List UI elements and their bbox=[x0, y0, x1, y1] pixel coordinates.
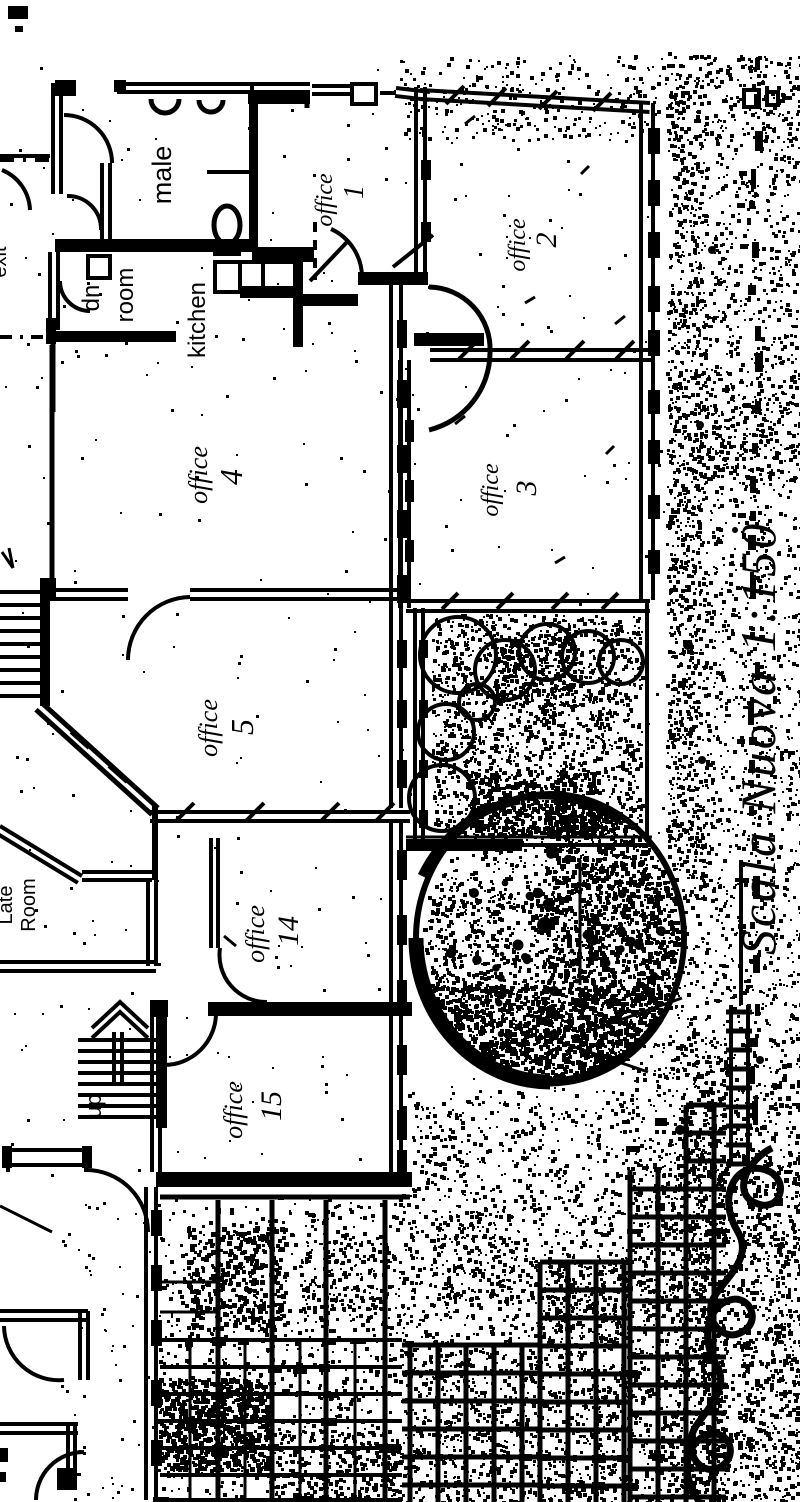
svg-text:male: male bbox=[147, 146, 177, 205]
svg-text:5: 5 bbox=[224, 719, 260, 735]
svg-text:exit: exit bbox=[0, 246, 11, 278]
svg-text:1: 1 bbox=[339, 185, 370, 199]
svg-text:room: room bbox=[112, 268, 139, 323]
svg-text:15: 15 bbox=[255, 1091, 288, 1121]
svg-text:Late: Late bbox=[0, 886, 17, 925]
svg-text:3: 3 bbox=[510, 481, 543, 497]
svg-text:office: office bbox=[241, 905, 270, 963]
svg-text:14: 14 bbox=[272, 916, 305, 946]
svg-text:up: up bbox=[81, 1094, 106, 1118]
svg-text:2: 2 bbox=[530, 233, 563, 248]
svg-text:office: office bbox=[219, 1081, 248, 1139]
svg-text:office: office bbox=[478, 463, 504, 517]
svg-text:office: office bbox=[505, 218, 531, 272]
svg-text:Room: Room bbox=[18, 878, 40, 931]
svg-text:office: office bbox=[194, 699, 223, 757]
svg-text:dn: dn bbox=[78, 285, 105, 312]
svg-text:4: 4 bbox=[213, 469, 249, 485]
svg-text:office: office bbox=[312, 173, 338, 227]
svg-text:office: office bbox=[184, 446, 213, 504]
svg-text:kitchen: kitchen bbox=[184, 282, 211, 358]
